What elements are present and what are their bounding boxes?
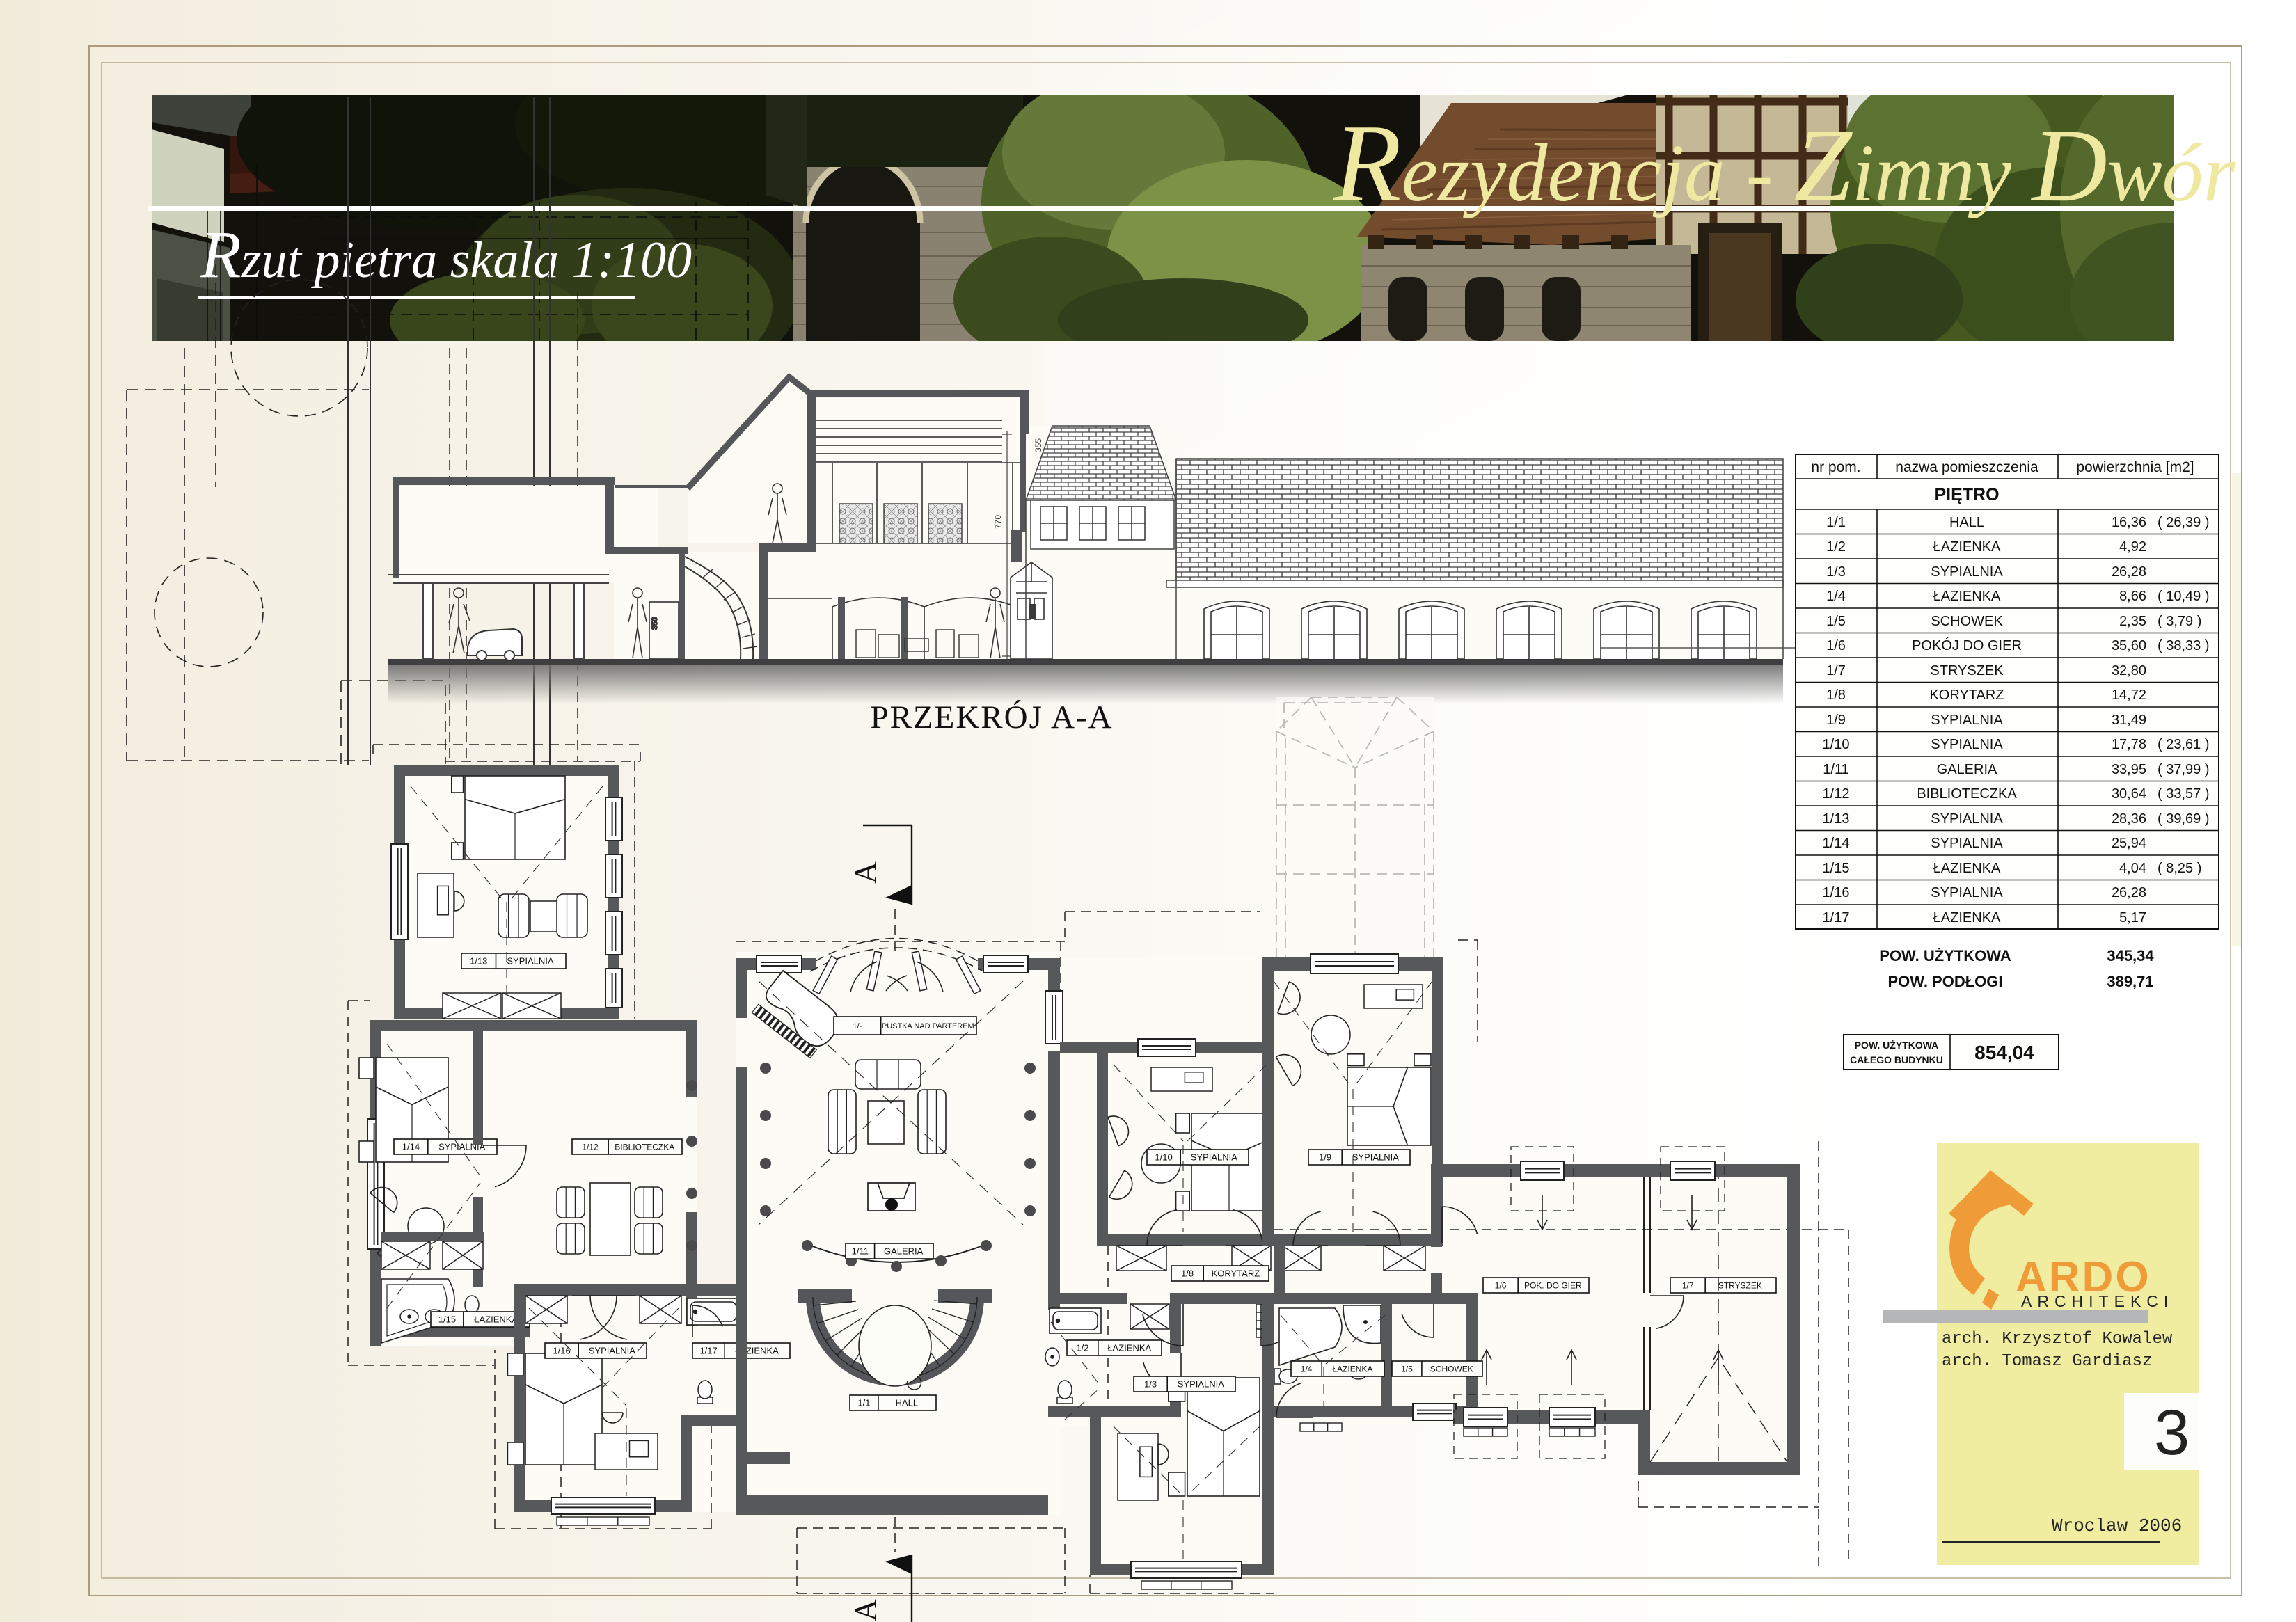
svg-text:1/-: 1/- <box>853 1022 862 1031</box>
svg-text:STRYSZEK: STRYSZEK <box>1930 663 2004 678</box>
svg-text:GALERIA: GALERIA <box>884 1246 924 1257</box>
svg-text:26,28: 26,28 <box>2112 564 2146 580</box>
svg-text:854,04: 854,04 <box>1974 1042 2034 1063</box>
svg-text:Wroclaw 2006: Wroclaw 2006 <box>2052 1516 2182 1536</box>
svg-text:PRZEKRÓJ A-A: PRZEKRÓJ A-A <box>870 699 1113 736</box>
svg-text:BIBLIOTECZKA: BIBLIOTECZKA <box>615 1142 674 1152</box>
svg-text:ŁAZIENKA: ŁAZIENKA <box>1332 1364 1372 1374</box>
svg-text:( 26,39 ): ( 26,39 ) <box>2158 515 2209 530</box>
svg-text:POW. UŻYTKOWA: POW. UŻYTKOWA <box>1879 947 2011 964</box>
svg-text:SYPIALNIA: SYPIALNIA <box>1352 1152 1400 1163</box>
svg-text:5,17: 5,17 <box>2119 910 2146 925</box>
svg-text:1/8: 1/8 <box>1826 687 1846 703</box>
svg-text:KORYTARZ: KORYTARZ <box>1212 1269 1260 1279</box>
svg-text:CAŁEGO BUDYNKU: CAŁEGO BUDYNKU <box>1850 1054 1943 1065</box>
svg-text:350: 350 <box>651 617 659 630</box>
svg-text:32,80: 32,80 <box>2112 663 2146 678</box>
svg-text:1/5: 1/5 <box>1401 1364 1413 1374</box>
svg-text:SYPIALNIA: SYPIALNIA <box>1931 836 2003 851</box>
svg-text:1/13: 1/13 <box>470 956 487 967</box>
svg-text:arch. Tomasz Gardiasz: arch. Tomasz Gardiasz <box>1942 1352 2152 1371</box>
svg-text:( 23,61 ): ( 23,61 ) <box>2158 737 2209 752</box>
svg-text:GALERIA: GALERIA <box>1937 762 1997 777</box>
svg-text:SYPIALNIA: SYPIALNIA <box>1931 885 2003 900</box>
svg-text:HALL: HALL <box>896 1398 919 1408</box>
svg-text:ŁAZIENKA: ŁAZIENKA <box>474 1314 518 1325</box>
svg-text:1/15: 1/15 <box>438 1314 456 1325</box>
svg-text:355: 355 <box>1034 438 1043 452</box>
svg-text:nazwa pomieszczenia: nazwa pomieszczenia <box>1895 459 2038 475</box>
svg-text:28,36: 28,36 <box>2112 811 2146 827</box>
svg-text:KORYTARZ: KORYTARZ <box>1929 687 2004 703</box>
svg-text:ŁAZIENKA: ŁAZIENKA <box>1933 861 2001 876</box>
svg-text:3: 3 <box>2154 1397 2190 1468</box>
svg-text:SYPIALNIA: SYPIALNIA <box>589 1346 636 1356</box>
svg-text:STRYSZEK: STRYSZEK <box>1718 1280 1762 1290</box>
svg-text:SYPIALNIA: SYPIALNIA <box>507 956 554 967</box>
svg-text:1/7: 1/7 <box>1826 663 1846 678</box>
svg-text:HALL: HALL <box>1949 515 1984 530</box>
svg-text:1/1: 1/1 <box>857 1398 870 1408</box>
svg-text:ARCHITEKCI: ARCHITEKCI <box>2021 1292 2174 1310</box>
svg-text:26,28: 26,28 <box>2112 885 2146 900</box>
svg-text:nr pom.: nr pom. <box>1811 459 1860 475</box>
svg-text:( 39,69 ): ( 39,69 ) <box>2158 811 2209 827</box>
svg-text:14,72: 14,72 <box>2112 687 2146 703</box>
svg-text:1/3: 1/3 <box>1826 564 1846 580</box>
svg-text:SYPIALNIA: SYPIALNIA <box>1931 713 2003 728</box>
svg-text:1/3: 1/3 <box>1144 1379 1157 1390</box>
svg-text:ŁAZIENKA: ŁAZIENKA <box>1933 589 2001 604</box>
svg-text:SCHOWEK: SCHOWEK <box>1430 1364 1473 1374</box>
svg-text:1/9: 1/9 <box>1826 713 1846 728</box>
svg-text:POKÓJ DO GIER: POKÓJ DO GIER <box>1912 637 2022 653</box>
svg-text:35,60: 35,60 <box>2112 638 2146 653</box>
svg-text:1/6: 1/6 <box>1826 638 1846 653</box>
svg-text:PIĘTRO: PIĘTRO <box>1934 485 1999 504</box>
svg-text:1/8: 1/8 <box>1181 1269 1194 1279</box>
svg-text:389,71: 389,71 <box>2107 973 2153 990</box>
svg-text:1/2: 1/2 <box>1826 539 1846 555</box>
svg-text:powierzchnia [m2]: powierzchnia [m2] <box>2076 459 2194 475</box>
svg-text:1/11: 1/11 <box>852 1246 869 1257</box>
svg-text:PUSTKA NAD PARTEREM: PUSTKA NAD PARTEREM <box>882 1022 974 1031</box>
svg-text:2,35: 2,35 <box>2119 614 2146 629</box>
svg-text:1/13: 1/13 <box>1823 811 1850 827</box>
svg-text:1/6: 1/6 <box>1495 1280 1507 1290</box>
svg-text:1/7: 1/7 <box>1682 1280 1694 1290</box>
svg-text:1/1: 1/1 <box>1826 515 1846 530</box>
svg-text:1/16: 1/16 <box>1823 885 1850 900</box>
svg-text:1/4: 1/4 <box>1301 1364 1313 1374</box>
svg-text:SYPIALNIA: SYPIALNIA <box>1931 564 2003 580</box>
svg-text:1/5: 1/5 <box>1826 614 1846 629</box>
svg-text:1/9: 1/9 <box>1319 1152 1331 1163</box>
svg-text:ŁAZIENKA: ŁAZIENKA <box>1933 910 2001 925</box>
svg-text:4,04: 4,04 <box>2119 861 2146 876</box>
svg-text:( 8,25 ): ( 8,25 ) <box>2158 861 2201 876</box>
svg-text:17,78: 17,78 <box>2112 737 2146 752</box>
svg-text:BIBLIOTECZKA: BIBLIOTECZKA <box>1917 786 2017 802</box>
svg-text:POW. UŻYTKOWA: POW. UŻYTKOWA <box>1855 1040 1939 1051</box>
svg-text:4,92: 4,92 <box>2119 539 2146 555</box>
svg-text:30,64: 30,64 <box>2112 786 2146 802</box>
svg-text:1/11: 1/11 <box>1823 762 1848 777</box>
svg-text:( 3,79 ): ( 3,79 ) <box>2158 614 2201 629</box>
svg-text:ŁAZIENKA: ŁAZIENKA <box>1933 539 2001 555</box>
svg-text:( 38,33 ): ( 38,33 ) <box>2158 638 2209 653</box>
svg-text:SYPIALNIA: SYPIALNIA <box>1191 1152 1238 1163</box>
svg-text:25,94: 25,94 <box>2112 836 2146 851</box>
svg-text:arch. Krzysztof Kowalew: arch. Krzysztof Kowalew <box>1942 1330 2173 1349</box>
svg-text:1/12: 1/12 <box>582 1142 599 1152</box>
svg-text:SCHOWEK: SCHOWEK <box>1931 614 2003 629</box>
svg-text:1/10: 1/10 <box>1155 1152 1172 1163</box>
svg-text:SYPIALNIA: SYPIALNIA <box>1178 1379 1225 1390</box>
svg-text:POW. PODŁOGI: POW. PODŁOGI <box>1887 973 2002 990</box>
svg-text:( 33,57 ): ( 33,57 ) <box>2158 786 2209 802</box>
svg-text:1/15: 1/15 <box>1823 861 1850 876</box>
svg-text:1/14: 1/14 <box>402 1142 420 1152</box>
svg-text:POK. DO GIER: POK. DO GIER <box>1524 1280 1582 1290</box>
svg-text:1/4: 1/4 <box>1826 589 1846 604</box>
svg-text:1/14: 1/14 <box>1823 836 1850 851</box>
svg-text:1/10: 1/10 <box>1823 737 1850 752</box>
svg-text:16,36: 16,36 <box>2112 515 2146 530</box>
svg-text:31,49: 31,49 <box>2112 713 2146 728</box>
svg-text:1/2: 1/2 <box>1076 1343 1088 1353</box>
svg-text:A: A <box>848 861 882 884</box>
svg-text:SYPIALNIA: SYPIALNIA <box>1931 811 2003 827</box>
svg-text:A: A <box>848 1599 882 1621</box>
svg-text:SYPIALNIA: SYPIALNIA <box>1931 737 2003 752</box>
svg-text:ŁAZIENKA: ŁAZIENKA <box>1107 1343 1151 1353</box>
svg-text:1/17: 1/17 <box>1823 910 1850 925</box>
svg-text:33,95: 33,95 <box>2112 762 2146 777</box>
svg-text:8,66: 8,66 <box>2119 589 2146 604</box>
svg-text:( 37,99 ): ( 37,99 ) <box>2158 762 2209 777</box>
svg-text:1/17: 1/17 <box>699 1346 717 1356</box>
svg-text:1/12: 1/12 <box>1823 786 1850 802</box>
svg-text:345,34: 345,34 <box>2107 947 2154 964</box>
svg-text:( 10,49 ): ( 10,49 ) <box>2158 589 2209 604</box>
svg-text:770: 770 <box>993 515 1003 529</box>
